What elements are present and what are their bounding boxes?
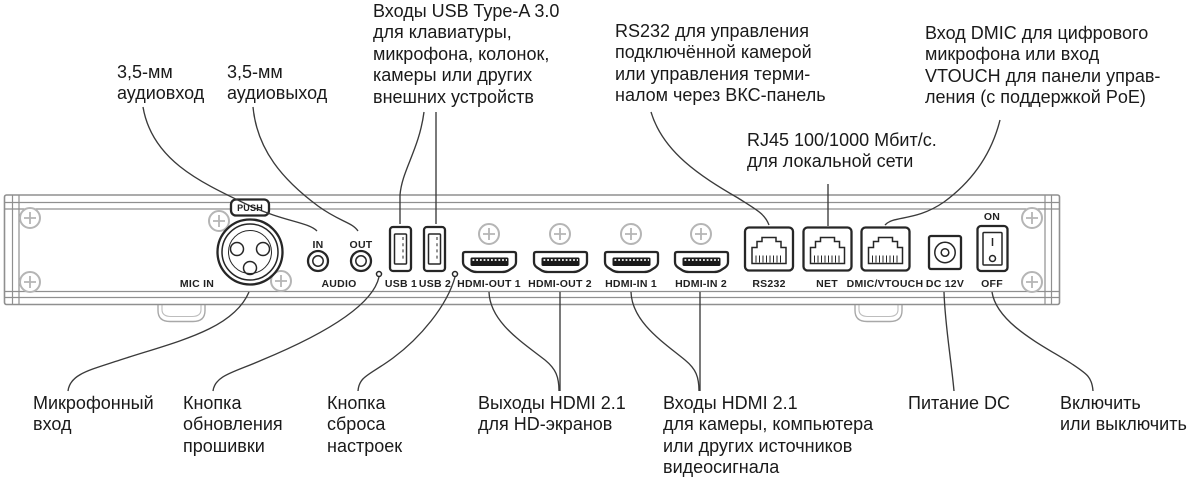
screw-icon	[479, 224, 499, 244]
screw-icon	[209, 211, 229, 231]
dmic-vtouch-port	[862, 228, 910, 271]
audio-out-jack	[351, 251, 371, 271]
usb-port-2	[424, 227, 445, 271]
callout-hdmi-out: Выходы HDMI 2.1для HD-экранов	[478, 393, 626, 436]
audio-in-label: IN	[313, 239, 324, 251]
hdmi-in1-label: HDMI-IN 1	[605, 278, 657, 290]
dc-12v-label: DC 12V	[926, 278, 964, 290]
screw-icon	[1022, 208, 1042, 228]
push-label: PUSH	[237, 203, 263, 213]
usb1-label: USB 1	[385, 278, 417, 290]
screw-icon	[691, 224, 711, 244]
callout-usb: Входы USB Type-A 3.0для клавиатуры,микро…	[373, 1, 559, 108]
hdmi-out2-label: HDMI-OUT 2	[528, 278, 592, 290]
hdmi-out-1-port	[463, 252, 516, 272]
dmic-vtouch-label: DMIC/VTOUCH	[847, 278, 924, 290]
audio-out-label: OUT	[350, 239, 373, 251]
screw-icon	[550, 224, 570, 244]
callout-hdmi-in: Входы HDMI 2.1для камеры, компьютераили …	[663, 393, 873, 479]
callout-audio-out: 3,5-ммаудиовыход	[227, 62, 327, 105]
screw-icon	[1022, 272, 1042, 292]
audio-in-jack	[308, 251, 328, 271]
power-switch	[978, 226, 1008, 271]
leader-dc	[944, 292, 954, 391]
foot-left	[158, 305, 205, 322]
callout-reset: Кнопкасбросанастроек	[327, 393, 402, 457]
screw-icon	[20, 208, 40, 228]
screw-icon	[20, 272, 40, 292]
off-label: OFF	[981, 278, 1003, 290]
net-port-label: NET	[816, 278, 838, 290]
hdmi-in-1-port	[605, 252, 658, 272]
callout-onoff: Включитьили выключить	[1060, 393, 1187, 436]
screw-icon	[621, 224, 641, 244]
leader-onoff	[992, 292, 1093, 391]
net-port	[804, 228, 852, 271]
hdmi-out-2-port	[534, 252, 587, 272]
hdmi-in2-label: HDMI-IN 2	[675, 278, 727, 290]
callout-rj45: RJ45 100/1000 Мбит/с.для локальной сети	[747, 130, 937, 173]
usb2-label: USB 2	[419, 278, 451, 290]
rs232-port	[745, 228, 793, 271]
callout-power: Питание DC	[908, 393, 1010, 414]
callout-dmic: Вход DMIC для цифровогомикрофона или вхо…	[925, 23, 1160, 109]
foot-right	[855, 305, 902, 322]
leader-hdmi-out1	[489, 292, 559, 391]
rs232-port-label: RS232	[752, 278, 785, 290]
callout-audio-in: 3,5-ммаудиовход	[117, 62, 204, 105]
callout-firmware: Кнопкаобновленияпрошивки	[183, 393, 283, 457]
callout-rs232: RS232 для управленияподключённой камерой…	[615, 21, 826, 107]
rear-panel-diagram: 3,5-ммаудиовход 3,5-ммаудиовыход Входы U…	[0, 0, 1200, 484]
hdmi-in-2-port	[675, 252, 728, 272]
callout-mic: Микрофонныйвход	[33, 393, 154, 436]
audio-label: AUDIO	[321, 278, 356, 290]
on-label: ON	[984, 211, 1000, 223]
leader-hdmi-in1	[631, 292, 699, 391]
mic-in-label: MIC IN	[180, 278, 214, 290]
dc-power-jack	[929, 236, 961, 269]
hdmi-out1-label: HDMI-OUT 1	[457, 278, 521, 290]
usb-port-1	[390, 227, 411, 271]
